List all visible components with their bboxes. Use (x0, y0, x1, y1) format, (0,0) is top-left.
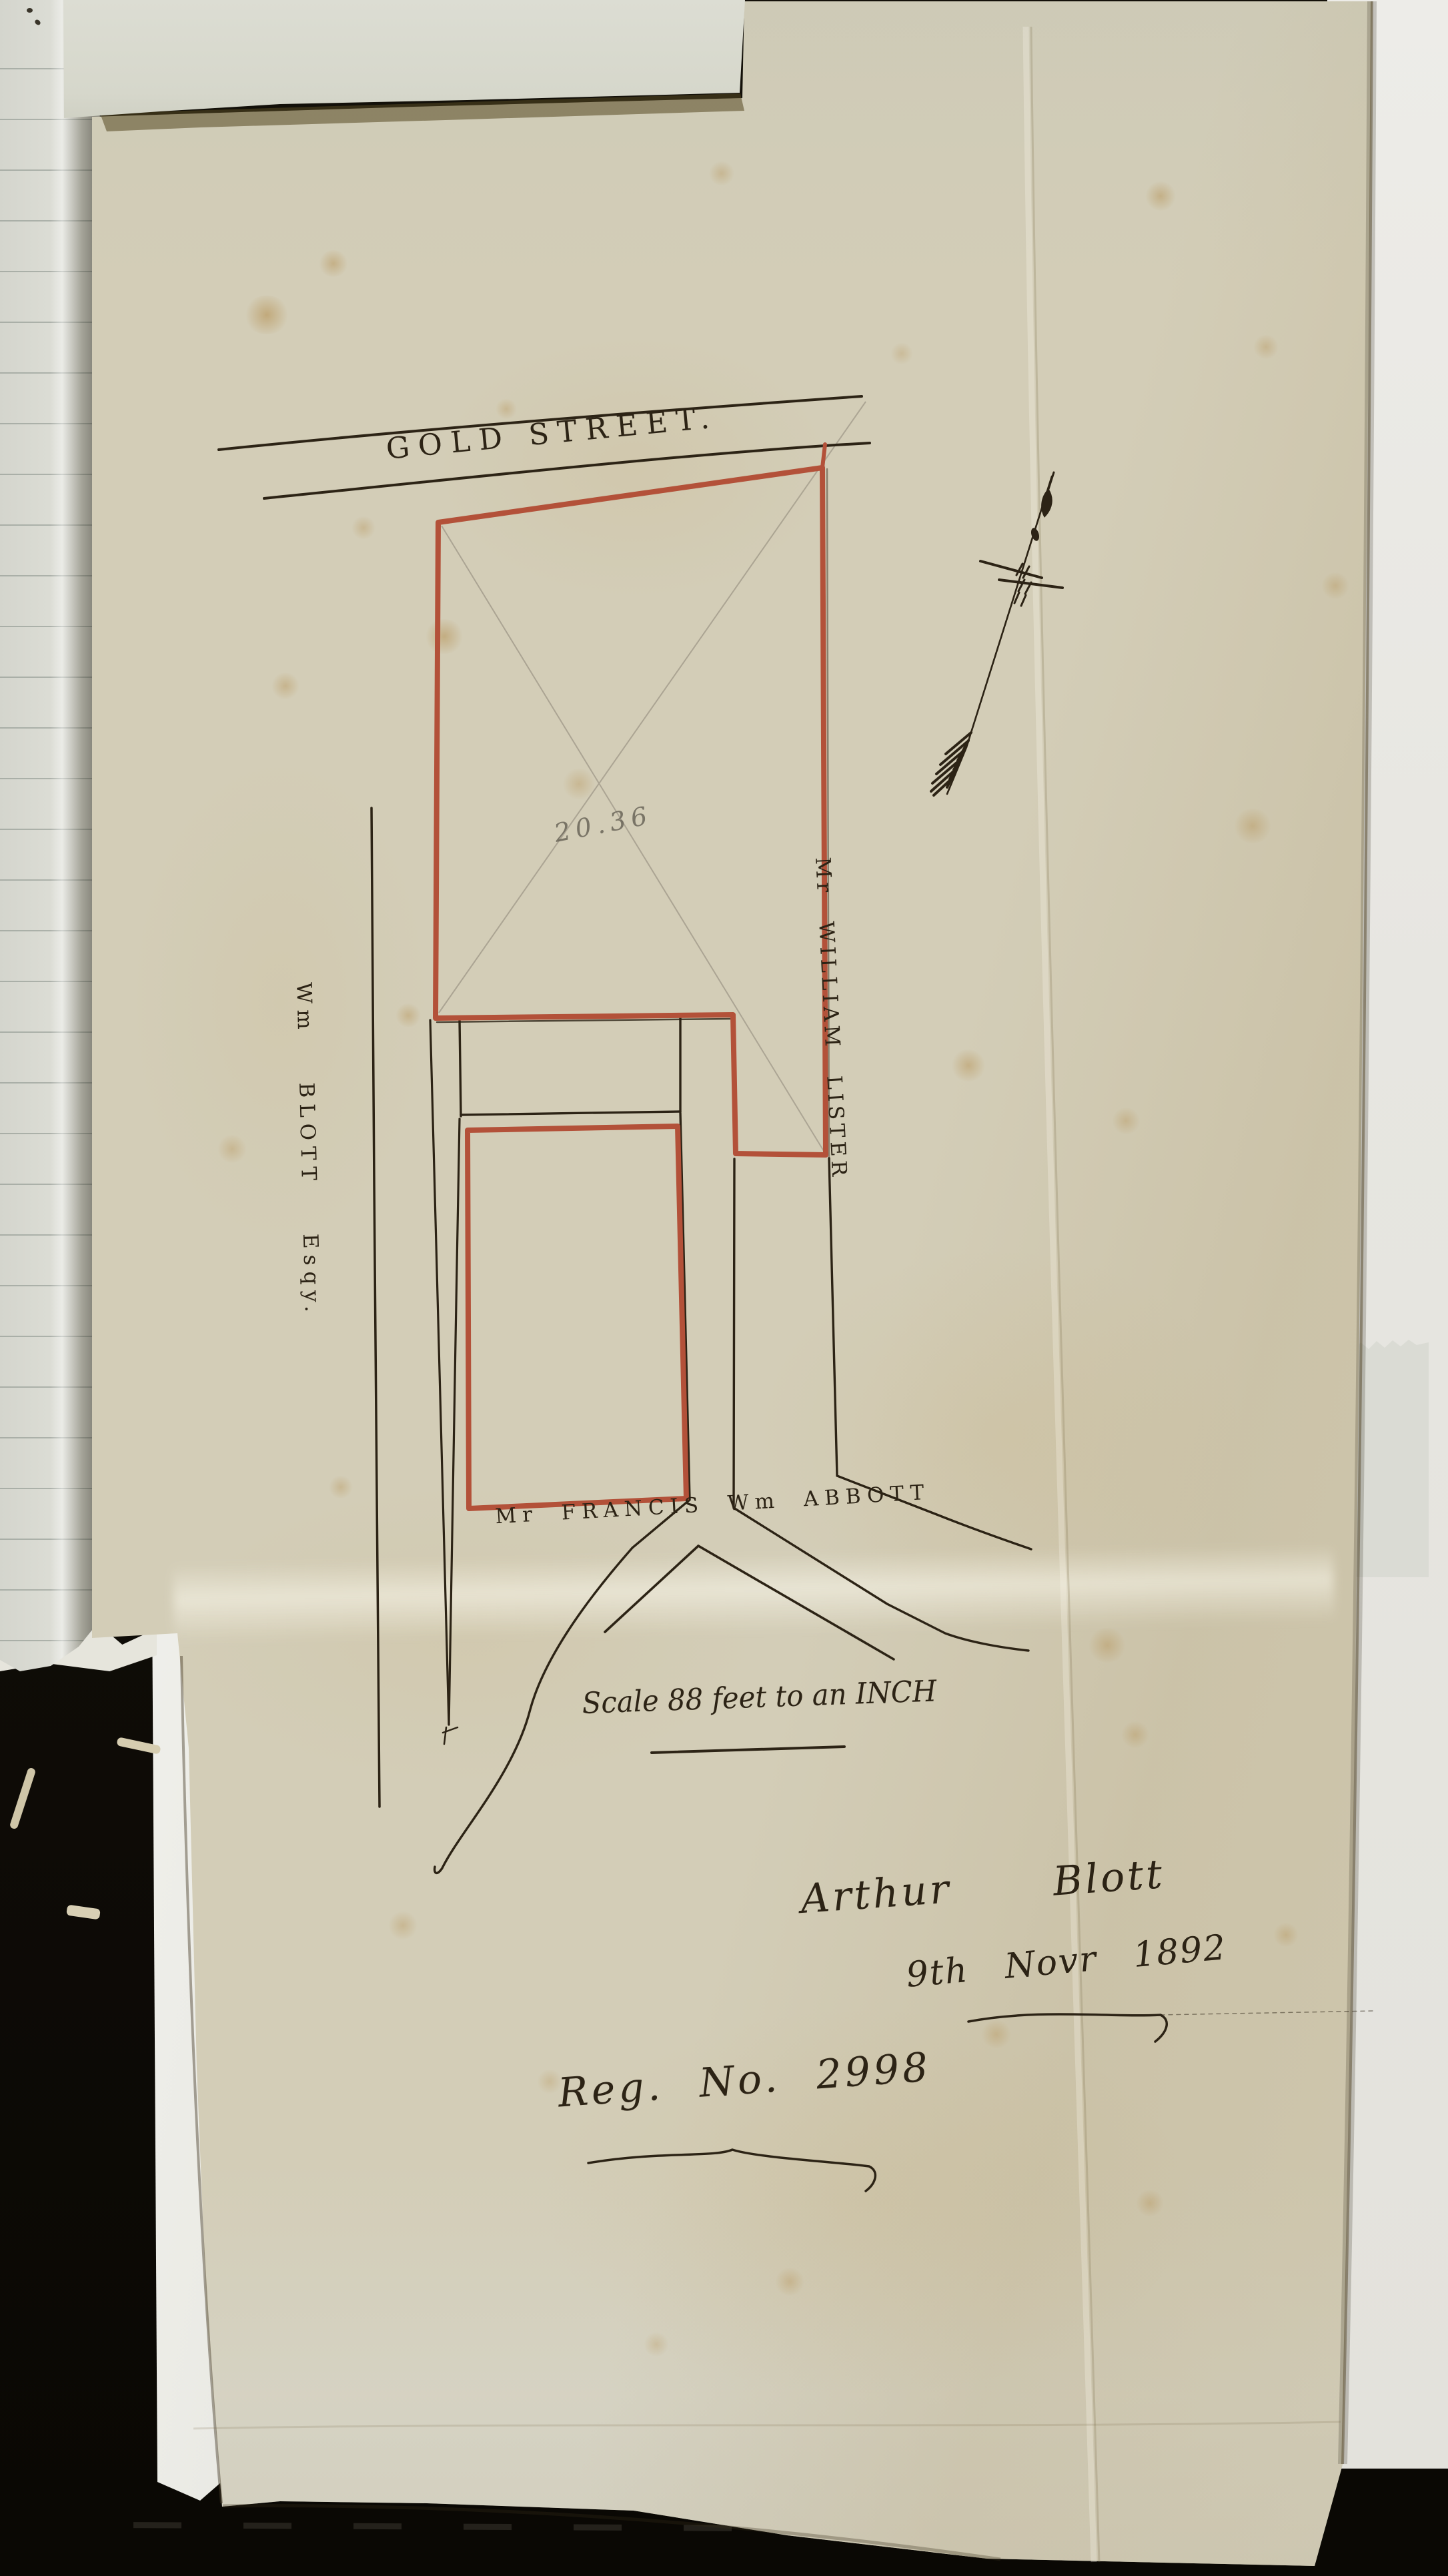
stain (1087, 1628, 1127, 1663)
stain (217, 1135, 247, 1163)
tissue-strip (1354, 1338, 1429, 1577)
stain (950, 1049, 986, 1082)
dust-speck (27, 8, 33, 13)
fold-sheen (173, 1545, 1335, 1641)
stain (395, 1003, 422, 1027)
stain (708, 161, 735, 185)
stain (1111, 1108, 1141, 1134)
stain (271, 673, 300, 699)
stain (1321, 572, 1350, 599)
parchment-sheet (0, 0, 1448, 2576)
stain (351, 516, 376, 539)
stain (318, 250, 349, 277)
stain (243, 296, 290, 334)
stain (1121, 1721, 1150, 1748)
stain (424, 619, 464, 654)
stain (495, 399, 518, 419)
stain (1135, 2190, 1165, 2216)
scanned-plan-page: GOLD STREET. Mr WILLIAM LISTER Wm BLOTT … (0, 0, 1448, 2576)
stain (643, 2332, 670, 2356)
lined-notepaper-curl (0, 0, 100, 1671)
stain (388, 1911, 418, 1940)
stain (328, 1476, 353, 1498)
stain (980, 2020, 1012, 2048)
stain (774, 2268, 805, 2296)
stain (1273, 1923, 1299, 1947)
stain (562, 769, 596, 799)
stain (1145, 181, 1177, 211)
stain (1233, 809, 1273, 843)
stain (890, 343, 914, 364)
stain (1253, 335, 1279, 359)
